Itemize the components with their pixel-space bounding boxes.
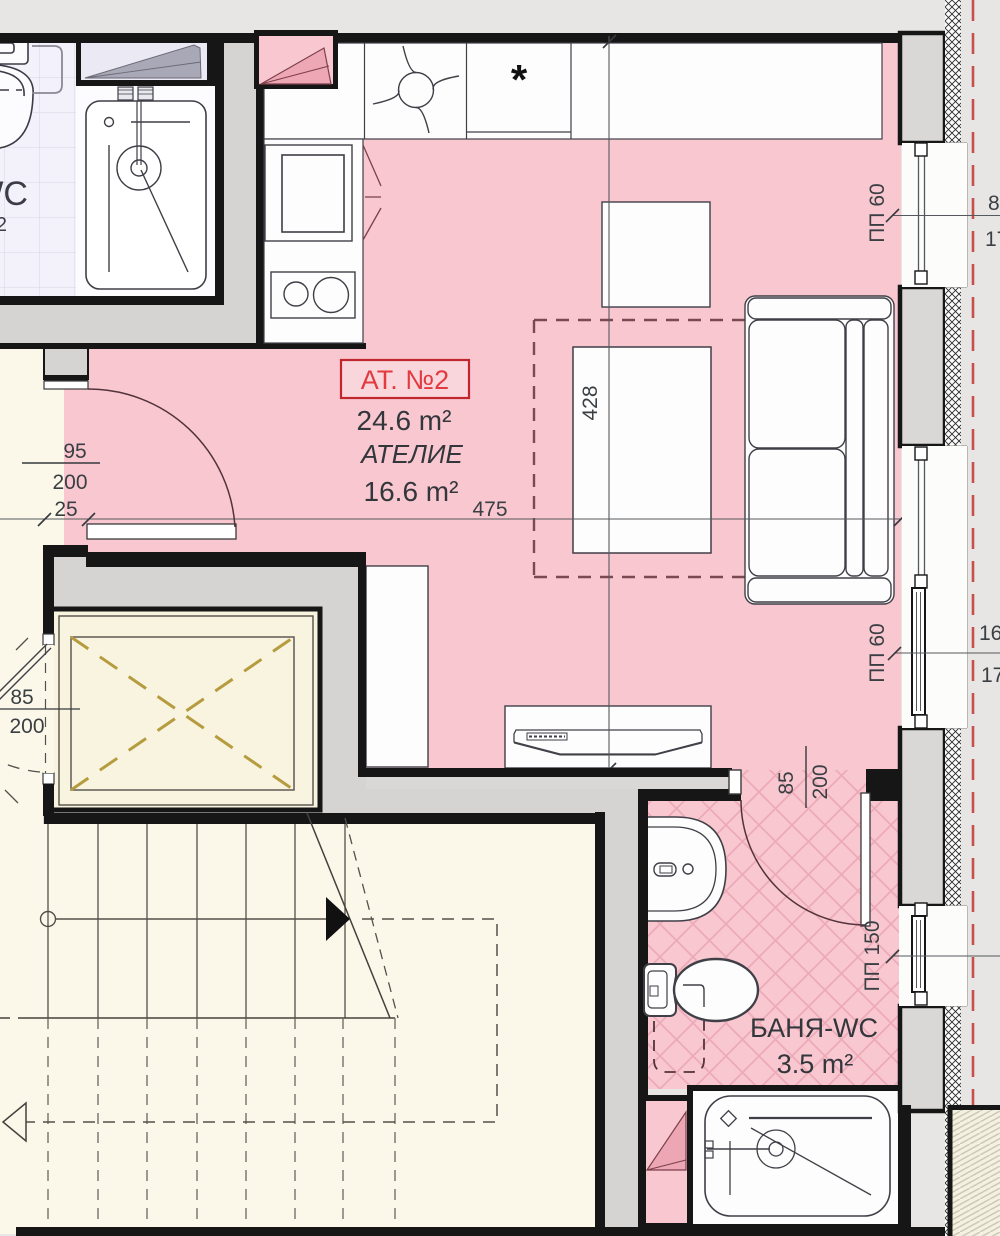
svg-text:ПП 60: ПП 60 — [866, 623, 889, 682]
svg-text:24.6 m²: 24.6 m² — [357, 405, 452, 436]
svg-text:85: 85 — [988, 192, 1000, 215]
svg-text:АТ. №2: АТ. №2 — [361, 365, 449, 395]
svg-text:БАНЯ-WC: БАНЯ-WC — [750, 1013, 878, 1043]
svg-text:175: 175 — [985, 228, 1000, 251]
svg-text:WC: WC — [0, 175, 28, 213]
svg-text:85: 85 — [775, 771, 798, 794]
svg-text:25: 25 — [54, 498, 77, 521]
svg-text:95: 95 — [63, 440, 86, 463]
svg-text:АТЕЛИЕ: АТЕЛИЕ — [359, 439, 463, 469]
svg-text:200: 200 — [809, 764, 832, 799]
svg-text:200: 200 — [52, 471, 87, 494]
svg-text:200: 200 — [9, 715, 44, 738]
svg-text:ПП 150: ПП 150 — [861, 920, 884, 991]
svg-text:475: 475 — [472, 498, 507, 521]
svg-text:16.6 m²: 16.6 m² — [364, 476, 459, 507]
svg-text:85: 85 — [10, 686, 33, 709]
svg-text:3.5 m²: 3.5 m² — [777, 1049, 854, 1079]
svg-text:*: * — [511, 56, 528, 103]
svg-text:428: 428 — [579, 385, 602, 420]
svg-text:2: 2 — [0, 214, 7, 236]
svg-text:165: 165 — [979, 622, 1000, 645]
svg-text:175: 175 — [981, 664, 1000, 687]
svg-text:ПП 60: ПП 60 — [866, 183, 889, 242]
